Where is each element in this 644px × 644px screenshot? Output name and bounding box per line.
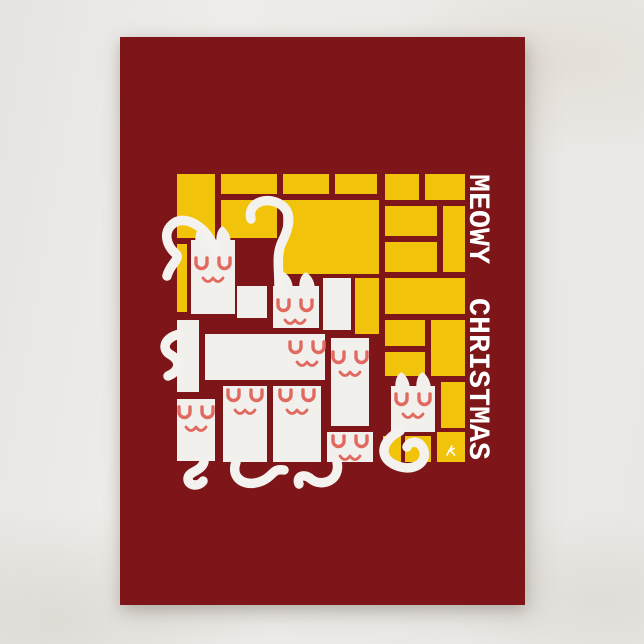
cat-tail-icon xyxy=(188,462,204,485)
yellow-block xyxy=(385,352,425,376)
yellow-block xyxy=(385,242,437,272)
yellow-block xyxy=(221,174,277,194)
yellow-block xyxy=(283,200,379,274)
cat-tail-icon xyxy=(235,462,284,483)
yellow-block xyxy=(385,174,419,200)
yellow-block xyxy=(385,278,465,314)
yellow-block xyxy=(385,206,437,236)
yellow-block xyxy=(283,174,329,194)
white-block xyxy=(205,334,325,380)
cat-b-ear-icon xyxy=(300,273,314,287)
card-title: MEOWY CHRISTMAS xyxy=(462,174,492,464)
cat-g-block xyxy=(177,399,215,461)
cat-i-block xyxy=(391,386,435,432)
yellow-block xyxy=(355,278,379,334)
cat-d-block xyxy=(331,338,369,426)
yellow-block xyxy=(335,174,377,194)
greeting-card: MEOWY CHRISTMAS xyxy=(120,37,525,605)
yellow-block xyxy=(385,320,425,346)
white-block xyxy=(237,286,267,318)
artwork xyxy=(157,169,487,499)
yellow-block xyxy=(425,174,465,200)
cat-tail-icon xyxy=(298,462,337,484)
white-block xyxy=(323,278,351,330)
